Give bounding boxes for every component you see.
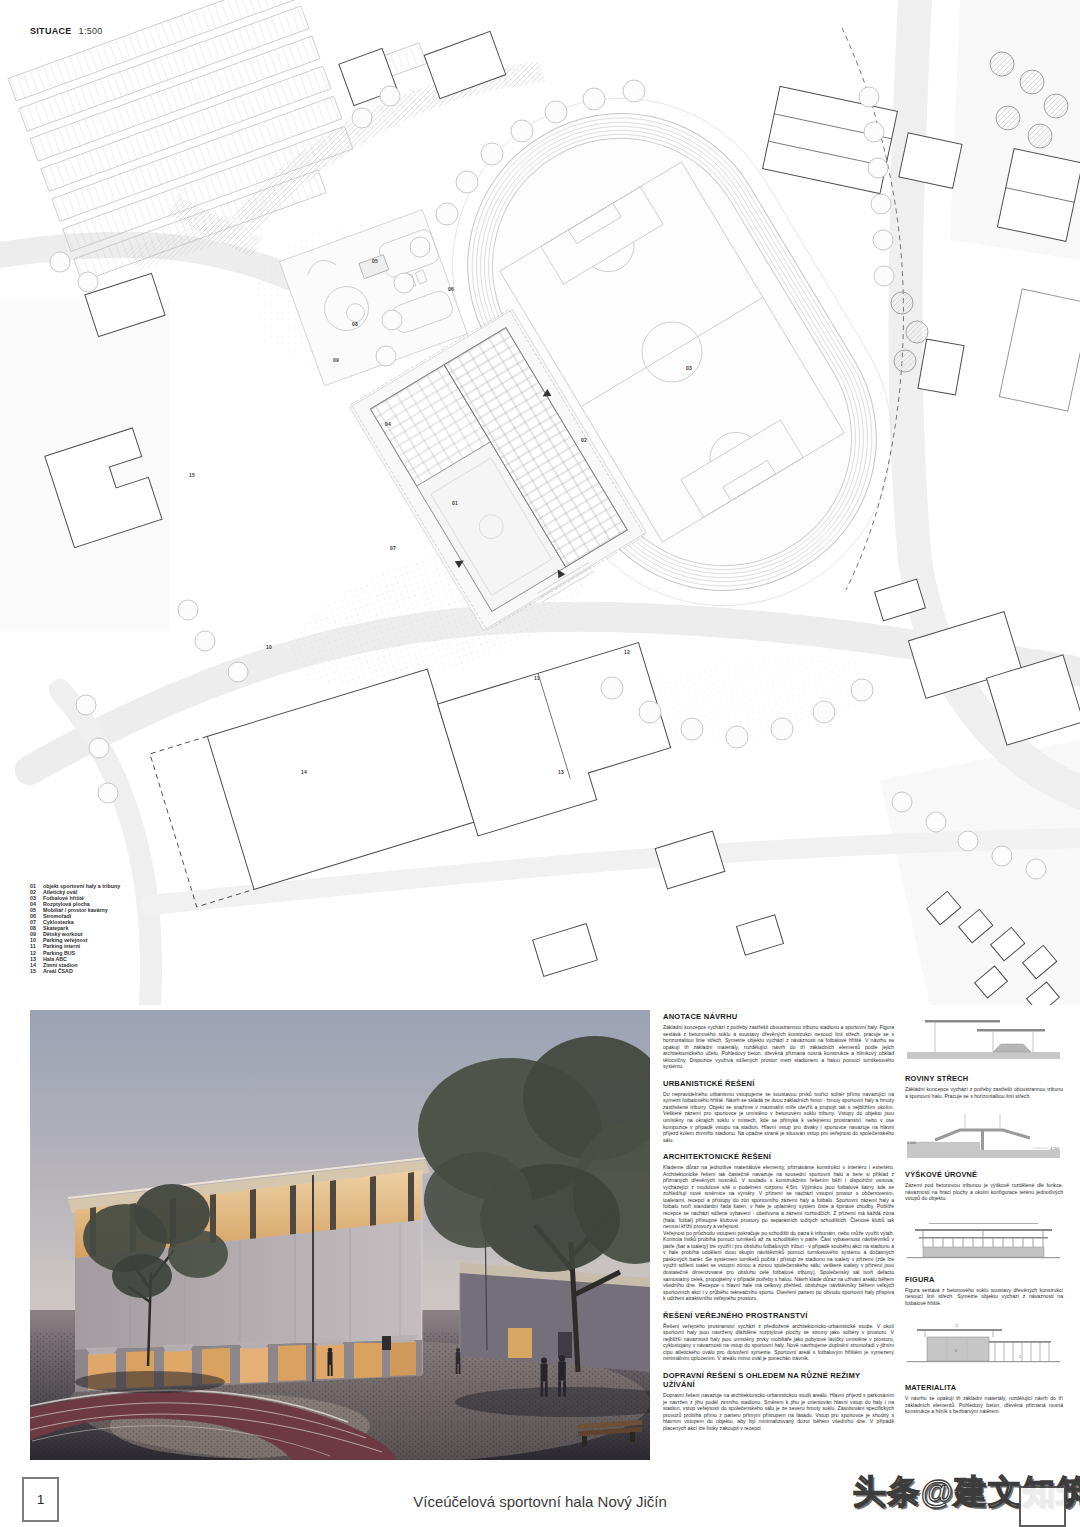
- diagram-title: VÝŠKOVÉ ÚROVNĚ: [905, 1170, 1063, 1179]
- callout-1: 1: [1019, 1355, 1021, 1359]
- plan-legend: 01objekt sportovní haly a tribuny 02Atle…: [30, 883, 120, 974]
- materiality-diagram: 2 5 1: [905, 1319, 1062, 1373]
- section-title: URBANISTICKÉ ŘEŠENÍ: [663, 1079, 894, 1088]
- level-label-left: 0,000: [907, 1141, 916, 1145]
- diagram-vyskove-urovne: 0,000 -4,200 VÝŠKOVÉ ÚROVNĚ Zázemí pod b…: [905, 1112, 1063, 1202]
- diagram-figura: FIGURA Figura sestává z betonového soklu…: [905, 1215, 1063, 1307]
- diagram-title: ROVINY STŘECH: [905, 1074, 1063, 1083]
- diagram-materialita: 2 5 1 MATERIALITA V návrhu se opakují tř…: [905, 1319, 1063, 1415]
- site-plan-drawing: [0, 0, 1080, 1005]
- hero-rendering: [30, 1010, 650, 1460]
- diagram-column: ROVINY STŘECH Základní koncepce vychází …: [905, 1012, 1063, 1428]
- plan-label-12: 12: [624, 649, 630, 655]
- section-anotace-navrhu: ANOTACE NÁVRHU Základní koncepce vychází…: [663, 1012, 894, 1070]
- plan-title: SITUACE1:500: [30, 26, 103, 36]
- section-urbanisticke-reseni: URBANISTICKÉ ŘEŠENÍ Do nepravidelného ur…: [663, 1079, 894, 1143]
- plan-label-08: 08: [352, 321, 358, 327]
- section-body: Dopravní řešení navazuje na architektoni…: [663, 1392, 894, 1431]
- plan-label-05: 05: [372, 258, 378, 264]
- plan-label-13: 13: [558, 769, 564, 775]
- height-levels-diagram: 0,000 -4,200: [905, 1112, 1062, 1160]
- diagram-caption: Základní koncepce vychází z potřeby zast…: [905, 1086, 1063, 1099]
- diagram-caption: Figura sestává z betonového soklu sousta…: [905, 1287, 1063, 1307]
- section-title: ŘEŠENÍ VEŘEJNÉHO PROSTRANSTVÍ: [663, 1311, 894, 1320]
- plan-label-01: 01: [452, 500, 458, 506]
- level-label-right: -4,200: [1049, 1147, 1059, 1151]
- litter-bin: [382, 1336, 391, 1350]
- section-title: ARCHITEKTONICKÉ ŘEŠENÍ: [663, 1152, 894, 1161]
- diagram-title: FIGURA: [905, 1275, 1063, 1284]
- section-body: Klademe důraz na jednotlivé materiálové …: [663, 1164, 894, 1301]
- callout-2: 2: [956, 1324, 958, 1328]
- plan-label-02: 02: [581, 437, 587, 443]
- plan-label-07: 07: [390, 545, 396, 551]
- figure-diagram: [905, 1215, 1062, 1265]
- plan-label-06: 06: [448, 286, 454, 292]
- section-body: Řešení veřejného prostranství vychází z …: [663, 1323, 894, 1362]
- watermark-stamp-box: [1019, 1486, 1066, 1527]
- section-title: DOPRAVNÍ ŘEŠENÍ S OHLEDEM NA RŮZNÉ REŽIM…: [663, 1371, 894, 1389]
- section-body: Základní koncepce vychází z potřeby zast…: [663, 1024, 894, 1070]
- plan-label-14: 14: [301, 769, 307, 775]
- roof-planes-diagram: [905, 1012, 1062, 1064]
- diagram-caption: Zázemí pod betonovou tribunou je výškově…: [905, 1182, 1063, 1202]
- plan-title-text: SITUACE: [30, 26, 72, 36]
- diagram-roviny-strech: ROVINY STŘECH Základní koncepce vychází …: [905, 1012, 1063, 1099]
- diagram-title: MATERIALITA: [905, 1383, 1063, 1392]
- building-13-hala-abc: [438, 643, 679, 836]
- section-dopravni-reseni: DOPRAVNÍ ŘEŠENÍ S OHLEDEM NA RŮZNÉ REŽIM…: [663, 1371, 894, 1431]
- diagram-caption: V návrhu se opakují tři základní materiá…: [905, 1395, 1063, 1415]
- site-plan: SITUACE1:500 01 02 03 04 05 06 07 08 09 …: [0, 0, 1080, 1005]
- plan-label-03: 03: [686, 365, 692, 371]
- callout-5: 5: [955, 1349, 957, 1353]
- section-title: ANOTACE NÁVRHU: [663, 1012, 894, 1021]
- rendering-drawing: [30, 1010, 650, 1460]
- plan-label-04: 04: [385, 421, 391, 427]
- plan-label-09: 09: [333, 357, 339, 363]
- presentation-board: SITUACE1:500 01 02 03 04 05 06 07 08 09 …: [0, 0, 1080, 1527]
- plan-label-11: 11: [534, 675, 540, 681]
- annotation-column: ANOTACE NÁVRHU Základní koncepce vychází…: [663, 1012, 894, 1431]
- section-body: Do nepravidelného urbanismu vstupujeme s…: [663, 1091, 894, 1143]
- section-reseni-verejneho-prostranstvi: ŘEŠENÍ VEŘEJNÉHO PROSTRANSTVÍ Řešení veř…: [663, 1311, 894, 1362]
- section-architektonicke-reseni: ARCHITEKTONICKÉ ŘEŠENÍ Klademe důraz na …: [663, 1152, 894, 1301]
- plan-label-15: 15: [189, 472, 195, 478]
- plan-label-10: 10: [266, 644, 272, 650]
- legend-item: 15Areál ČSAD: [30, 968, 120, 974]
- plan-scale: 1:500: [79, 26, 103, 36]
- building-right-wing: [460, 1262, 650, 1372]
